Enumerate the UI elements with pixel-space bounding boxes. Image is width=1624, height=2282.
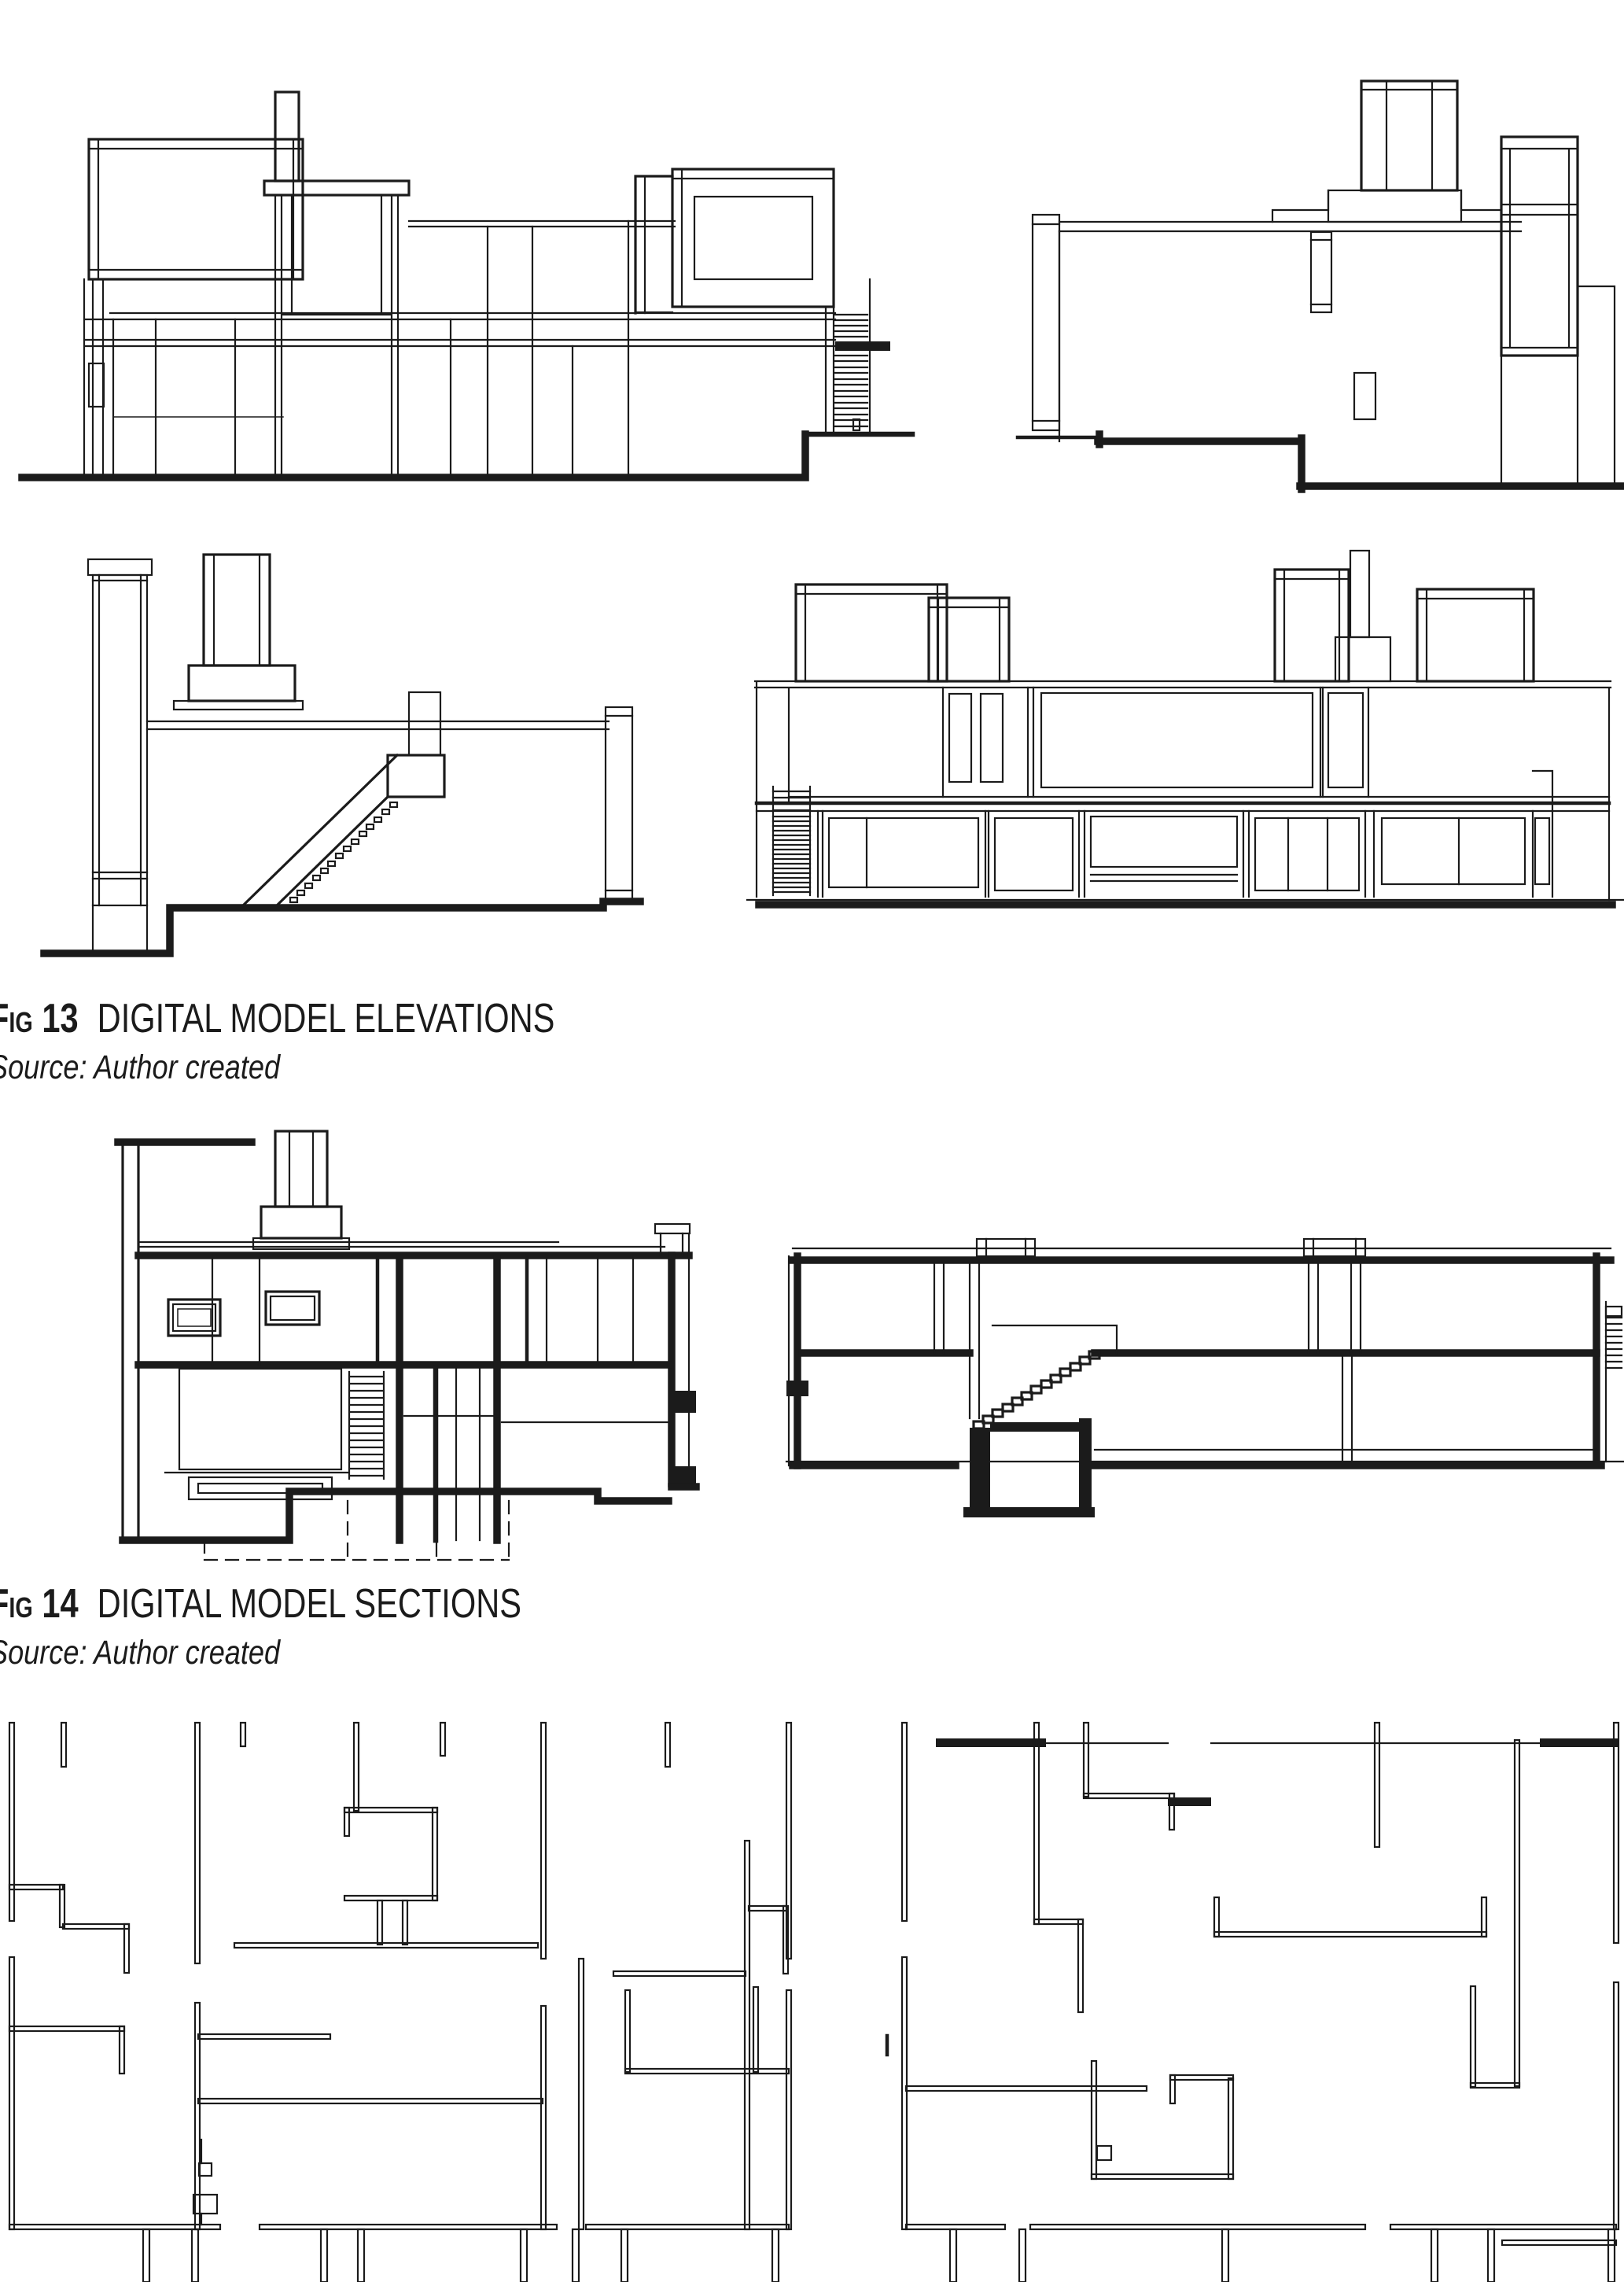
plan-column-posts — [143, 2229, 779, 2282]
figure-14-source: Source: Author created — [0, 1635, 654, 1671]
fig13-elevation-drawing-2 — [1011, 71, 1624, 503]
section-transverse-svg — [118, 1131, 696, 1568]
plan-column-posts — [950, 2229, 1615, 2282]
figure-14-label: Fig 14 — [0, 1581, 79, 1627]
floor-plan-drawing-1 — [0, 1723, 794, 2282]
fig13-elevation-drawing-3 — [41, 555, 640, 961]
figure-13-title: DIGITAL MODEL ELEVATIONS — [98, 996, 555, 1041]
plan-walls — [902, 1723, 1618, 2245]
plan-fireplace-detail — [193, 2140, 217, 2225]
fig13-elevation-drawing-1 — [22, 43, 932, 496]
figure-13-caption-line: Fig 13DIGITAL MODEL ELEVATIONS — [0, 997, 696, 1041]
figure-14-caption-line: Fig 14DIGITAL MODEL SECTIONS — [0, 1583, 654, 1626]
floor-plan-drawing-2 — [881, 1723, 1624, 2282]
elevation-south-svg — [41, 555, 640, 961]
figure-14-caption: Fig 14DIGITAL MODEL SECTIONS Source: Aut… — [0, 1583, 654, 1671]
figure-13-caption: Fig 13DIGITAL MODEL ELEVATIONS Source: A… — [0, 997, 696, 1086]
figure-13-label: Fig 13 — [0, 996, 79, 1041]
elevation-east-svg — [747, 551, 1624, 928]
elevation-west-svg — [22, 43, 932, 496]
fig14-section-drawing-2 — [786, 1239, 1624, 1546]
section-longitudinal-svg — [786, 1239, 1624, 1546]
figure-13-source: Source: Author created — [0, 1050, 696, 1086]
stair-baluster-dots — [282, 802, 397, 910]
paper-page: { "page": { "width": 2065, "height": 290… — [0, 0, 1624, 2282]
figure-14-title: DIGITAL MODEL SECTIONS — [98, 1581, 521, 1627]
plan-walls — [9, 1723, 791, 2229]
floor-plan-left-svg — [0, 1723, 794, 2282]
fig13-elevation-drawing-4 — [747, 551, 1624, 928]
floor-plan-right-svg — [881, 1723, 1624, 2282]
elevation-north-svg — [1011, 71, 1624, 503]
fig14-section-drawing-1 — [118, 1131, 696, 1568]
section-stair-steps — [974, 1351, 1099, 1429]
